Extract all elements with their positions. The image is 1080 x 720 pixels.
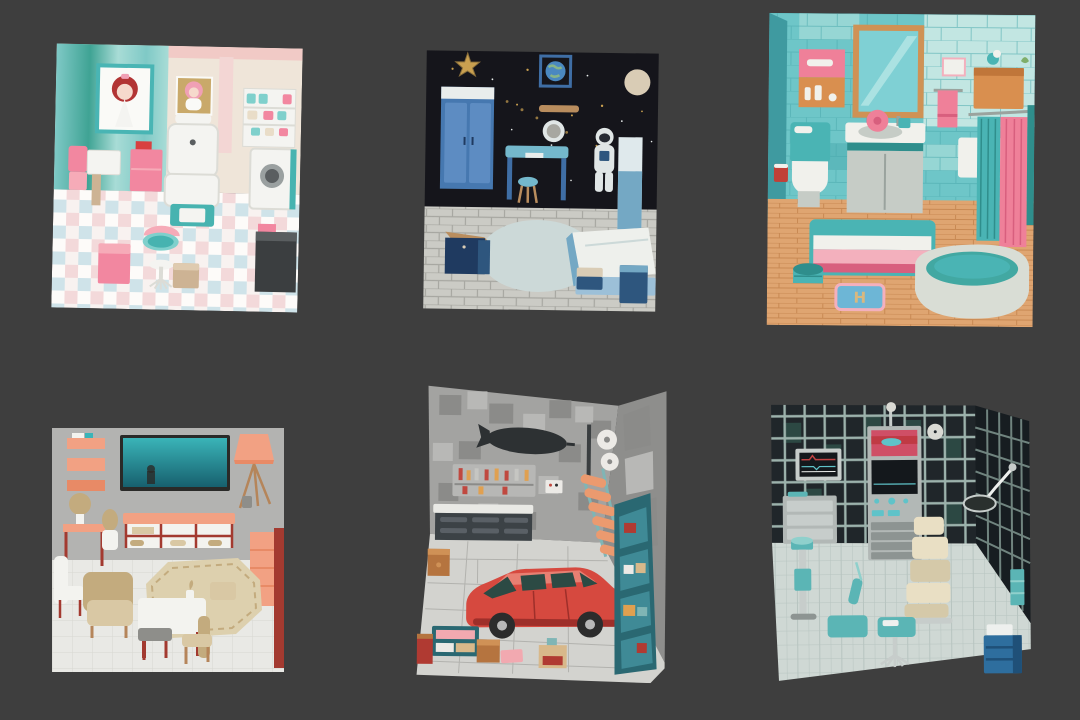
pink-cube-stool <box>98 243 131 284</box>
vase <box>102 509 118 531</box>
doll-poster-bonnet <box>176 77 212 115</box>
bathroom-render: H <box>767 13 1036 327</box>
red-cup <box>774 164 788 182</box>
wall-pipe <box>587 424 592 480</box>
doll-salon-render <box>51 43 302 312</box>
washing-machine <box>249 149 296 210</box>
room-thumbnail-space-bedroom <box>419 48 663 313</box>
wall-shelves <box>67 433 105 491</box>
cake-shelf <box>243 88 296 147</box>
vanity-sink <box>845 110 926 214</box>
tool-pegboard <box>452 464 535 497</box>
patient-monitor <box>795 448 841 480</box>
pink-bench <box>68 146 88 190</box>
tray-table <box>878 617 916 637</box>
blue-wardrobe <box>440 87 494 190</box>
control-panel <box>545 480 562 493</box>
red-cabinet <box>417 634 433 664</box>
room-thumbnail-doll-salon <box>51 43 302 312</box>
wall-art <box>943 58 965 75</box>
workbench <box>433 504 533 541</box>
salon-chair <box>164 113 220 227</box>
teal-shelf <box>432 626 479 656</box>
ball-lamp <box>69 493 91 515</box>
medicine-cabinet <box>799 49 846 107</box>
living-room-render <box>52 428 284 672</box>
wall-shelf <box>539 105 579 113</box>
dark-counter <box>255 224 297 293</box>
space-bedroom-render <box>419 48 663 313</box>
teal-stool <box>793 263 823 283</box>
teal-cup <box>898 118 910 128</box>
monogram-mat: H <box>836 284 884 309</box>
wood-frame-mirror <box>855 28 921 116</box>
bathtub <box>915 244 1030 319</box>
doll-poster-red-hair <box>97 65 152 132</box>
footstool <box>576 268 602 290</box>
tan-cube-stool <box>173 263 200 289</box>
rooms-collage: H <box>0 0 1080 720</box>
teal-table <box>828 615 868 637</box>
right-wall-cabinet <box>1010 569 1024 605</box>
pink-mat <box>500 649 523 663</box>
mat-monogram-text: H <box>854 289 867 307</box>
room-thumbnail-clinic <box>763 391 1043 685</box>
room-thumbnail-living-room <box>52 428 284 672</box>
bookcase <box>617 137 642 229</box>
navy-dresser <box>445 232 491 275</box>
nightstand <box>619 265 648 303</box>
brown-crate <box>428 549 450 576</box>
clinic-render <box>763 391 1043 685</box>
drawer-cart <box>783 491 837 543</box>
clock-center <box>934 430 937 433</box>
brown-cube <box>477 639 500 662</box>
teal-round-table <box>142 225 180 251</box>
room-thumbnail-garage <box>416 383 667 684</box>
room-thumbnail-bathroom: H <box>767 13 1036 327</box>
earth-picture <box>540 56 570 86</box>
tv <box>120 435 230 491</box>
sideboard <box>123 513 235 548</box>
garage-render <box>416 383 667 684</box>
